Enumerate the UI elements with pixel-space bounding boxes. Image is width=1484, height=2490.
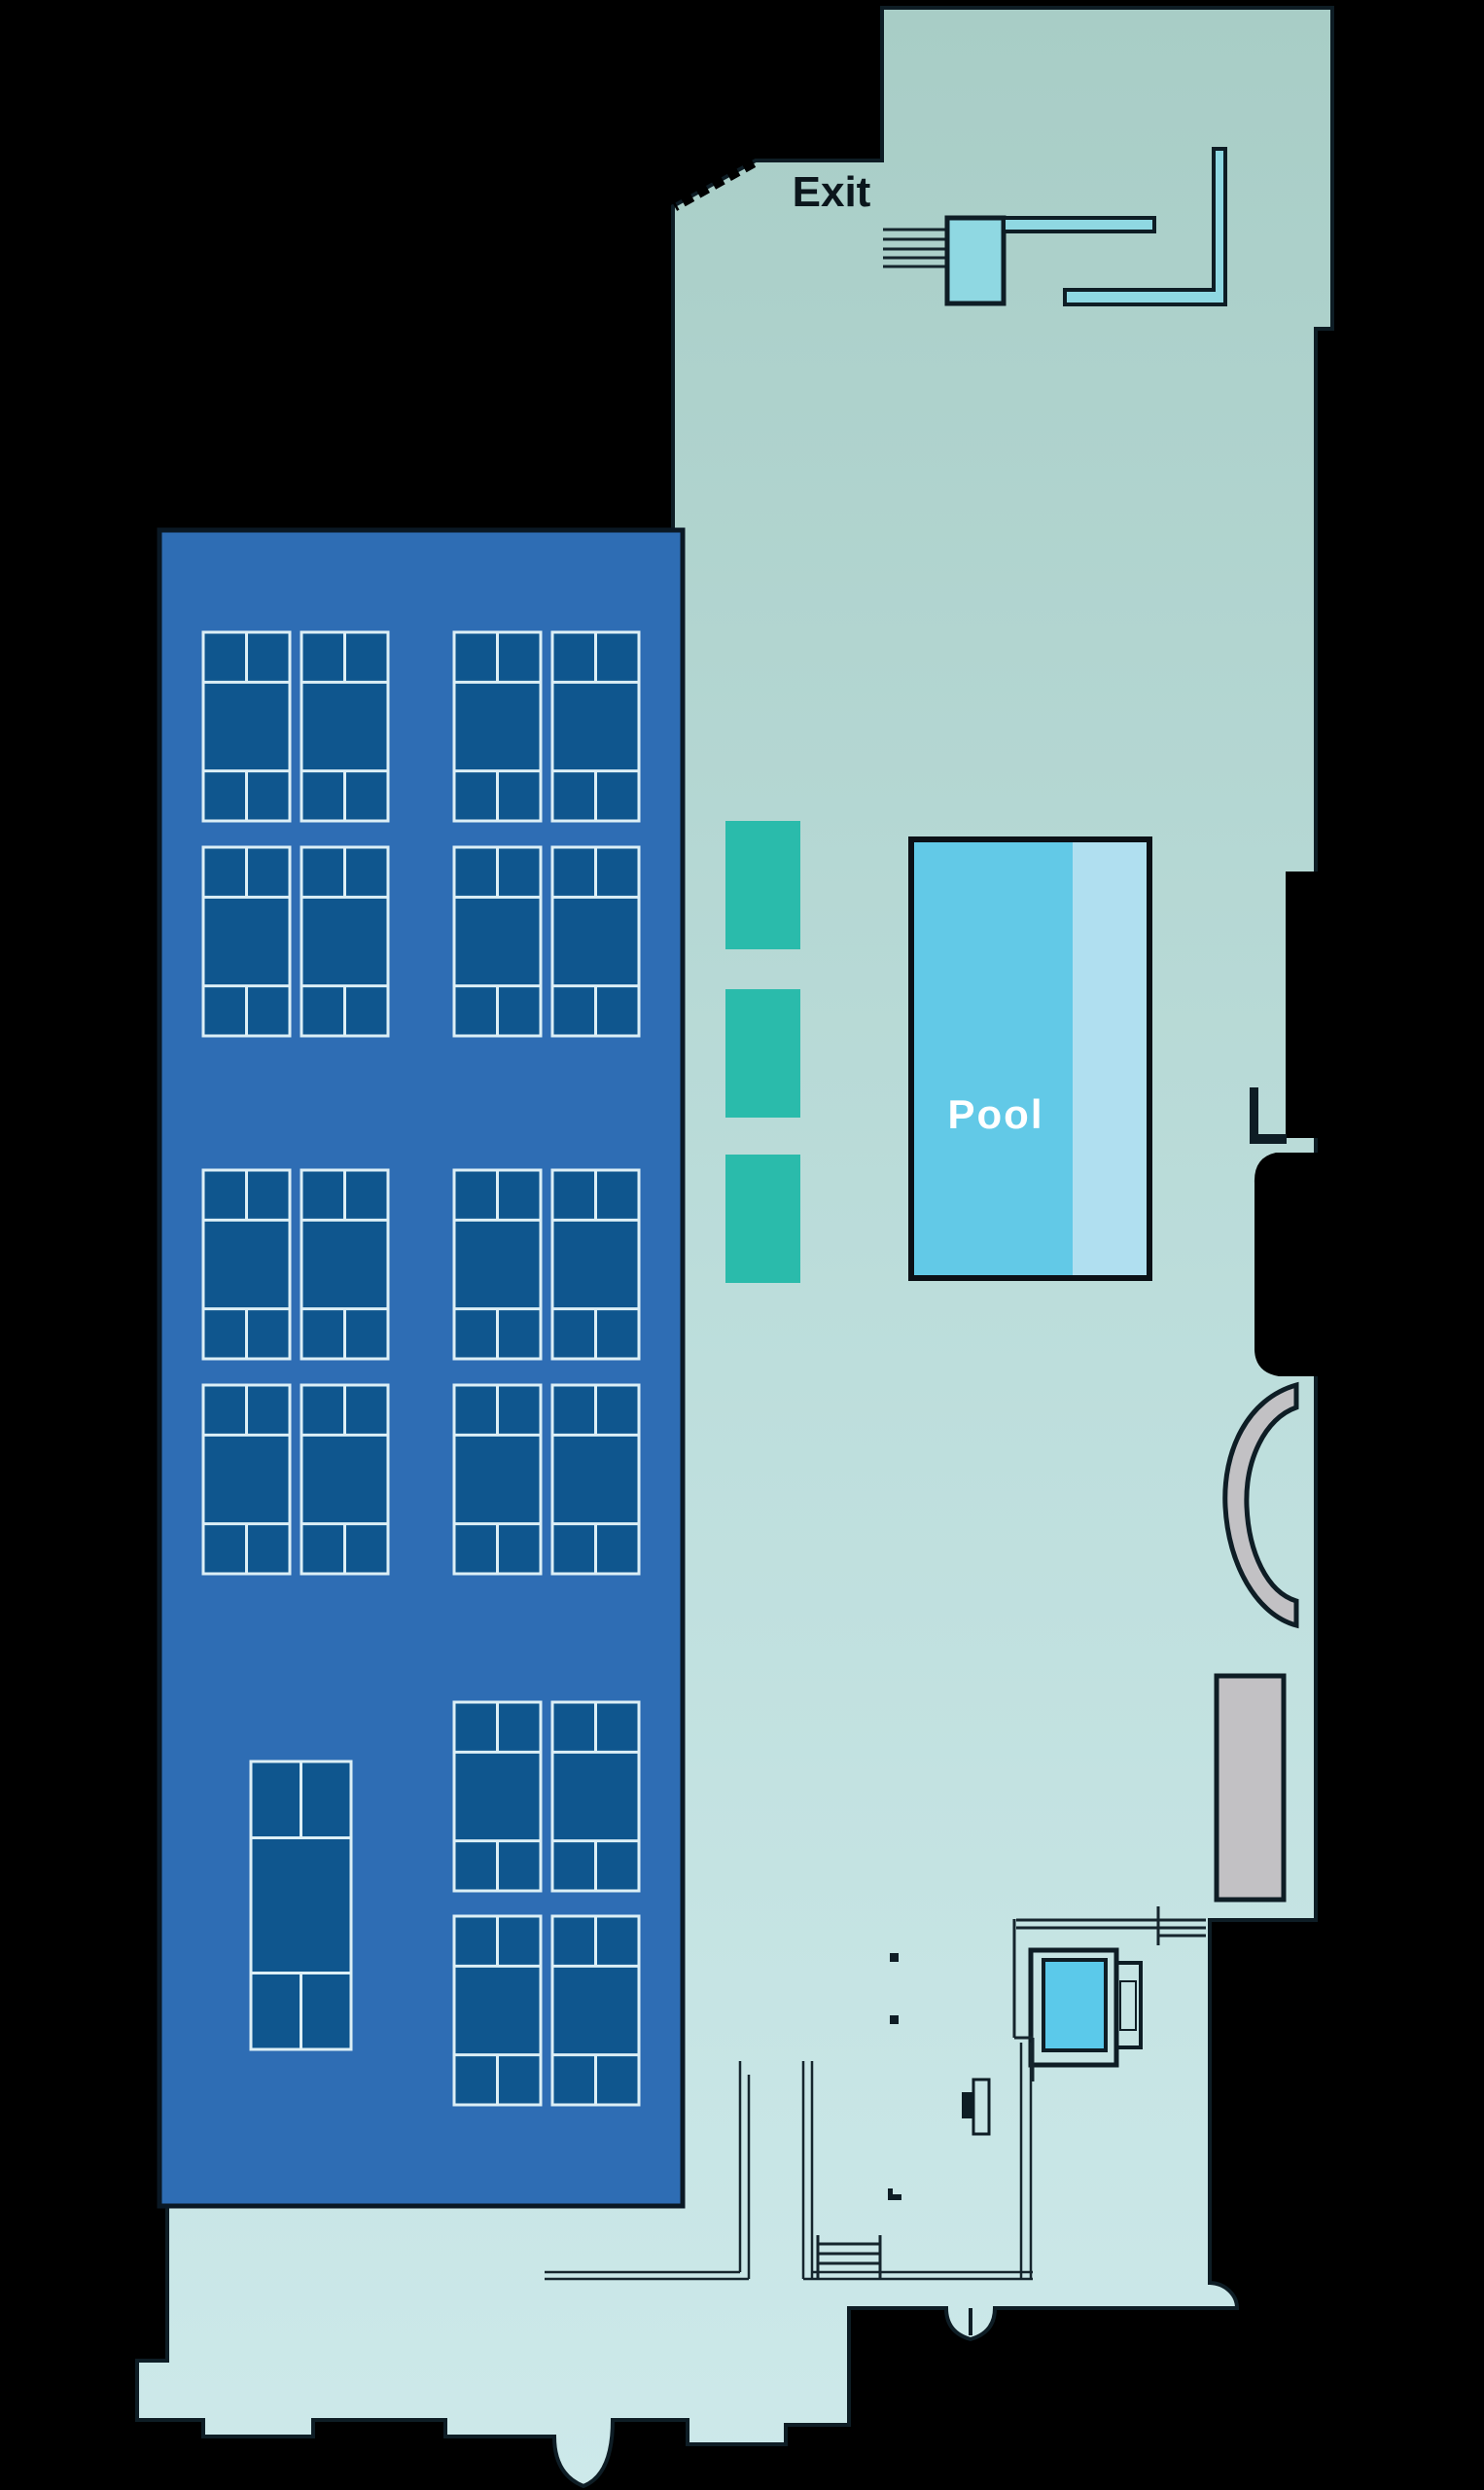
pickleball-court	[203, 847, 290, 1036]
door-jamb-vertical	[1250, 1087, 1258, 1140]
pickleball-court	[454, 1385, 541, 1574]
pickleball-court	[552, 1170, 639, 1359]
wall-window-tab	[962, 2092, 973, 2118]
pickleball-court	[251, 1761, 351, 2049]
pickleball-court	[454, 1702, 541, 1891]
pickleball-court	[301, 632, 388, 821]
pickleball-court	[203, 1385, 290, 1574]
pool: Pool	[911, 839, 1149, 1278]
pickleball-court	[552, 1702, 639, 1891]
exercise-mat	[725, 1155, 800, 1283]
stair-rail	[1004, 218, 1154, 231]
pool-label: Pool	[948, 1091, 1044, 1137]
pickleball-court	[454, 1916, 541, 2105]
stair-landing	[947, 218, 1004, 303]
equipment-block	[1217, 1676, 1284, 1900]
pickleball-court	[552, 632, 639, 821]
wall-niche	[1286, 871, 1344, 1138]
exercise-mat	[725, 989, 800, 1118]
pickleball-court	[203, 632, 290, 821]
pickleball-court	[552, 847, 639, 1036]
corner-mark	[888, 2194, 901, 2200]
exercise-mat	[725, 821, 800, 949]
hot-tub-water	[1043, 1960, 1106, 2050]
door-jamb-horizontal	[1250, 1134, 1287, 1144]
pickleball-court	[301, 1170, 388, 1359]
pickleball-court	[203, 1170, 290, 1359]
courts-area	[159, 530, 683, 2206]
pickleball-court	[301, 847, 388, 1036]
pool-shelf	[1073, 842, 1147, 1275]
column-dot	[890, 2015, 899, 2024]
column-dot	[890, 1953, 899, 1962]
pickleball-court	[552, 1385, 639, 1574]
pickleball-court	[454, 1170, 541, 1359]
floorplan-canvas: Pool Exit	[0, 0, 1484, 2490]
wall-mass	[1254, 1153, 1334, 1376]
door-center-tick	[969, 2308, 972, 2335]
facility-map: Pool Exit	[0, 0, 1484, 2490]
exit-label: Exit	[793, 168, 871, 216]
pickleball-court	[454, 847, 541, 1036]
pickleball-court	[301, 1385, 388, 1574]
pickleball-court	[454, 632, 541, 821]
pickleball-court	[552, 1916, 639, 2105]
mats-layer	[725, 821, 800, 1283]
